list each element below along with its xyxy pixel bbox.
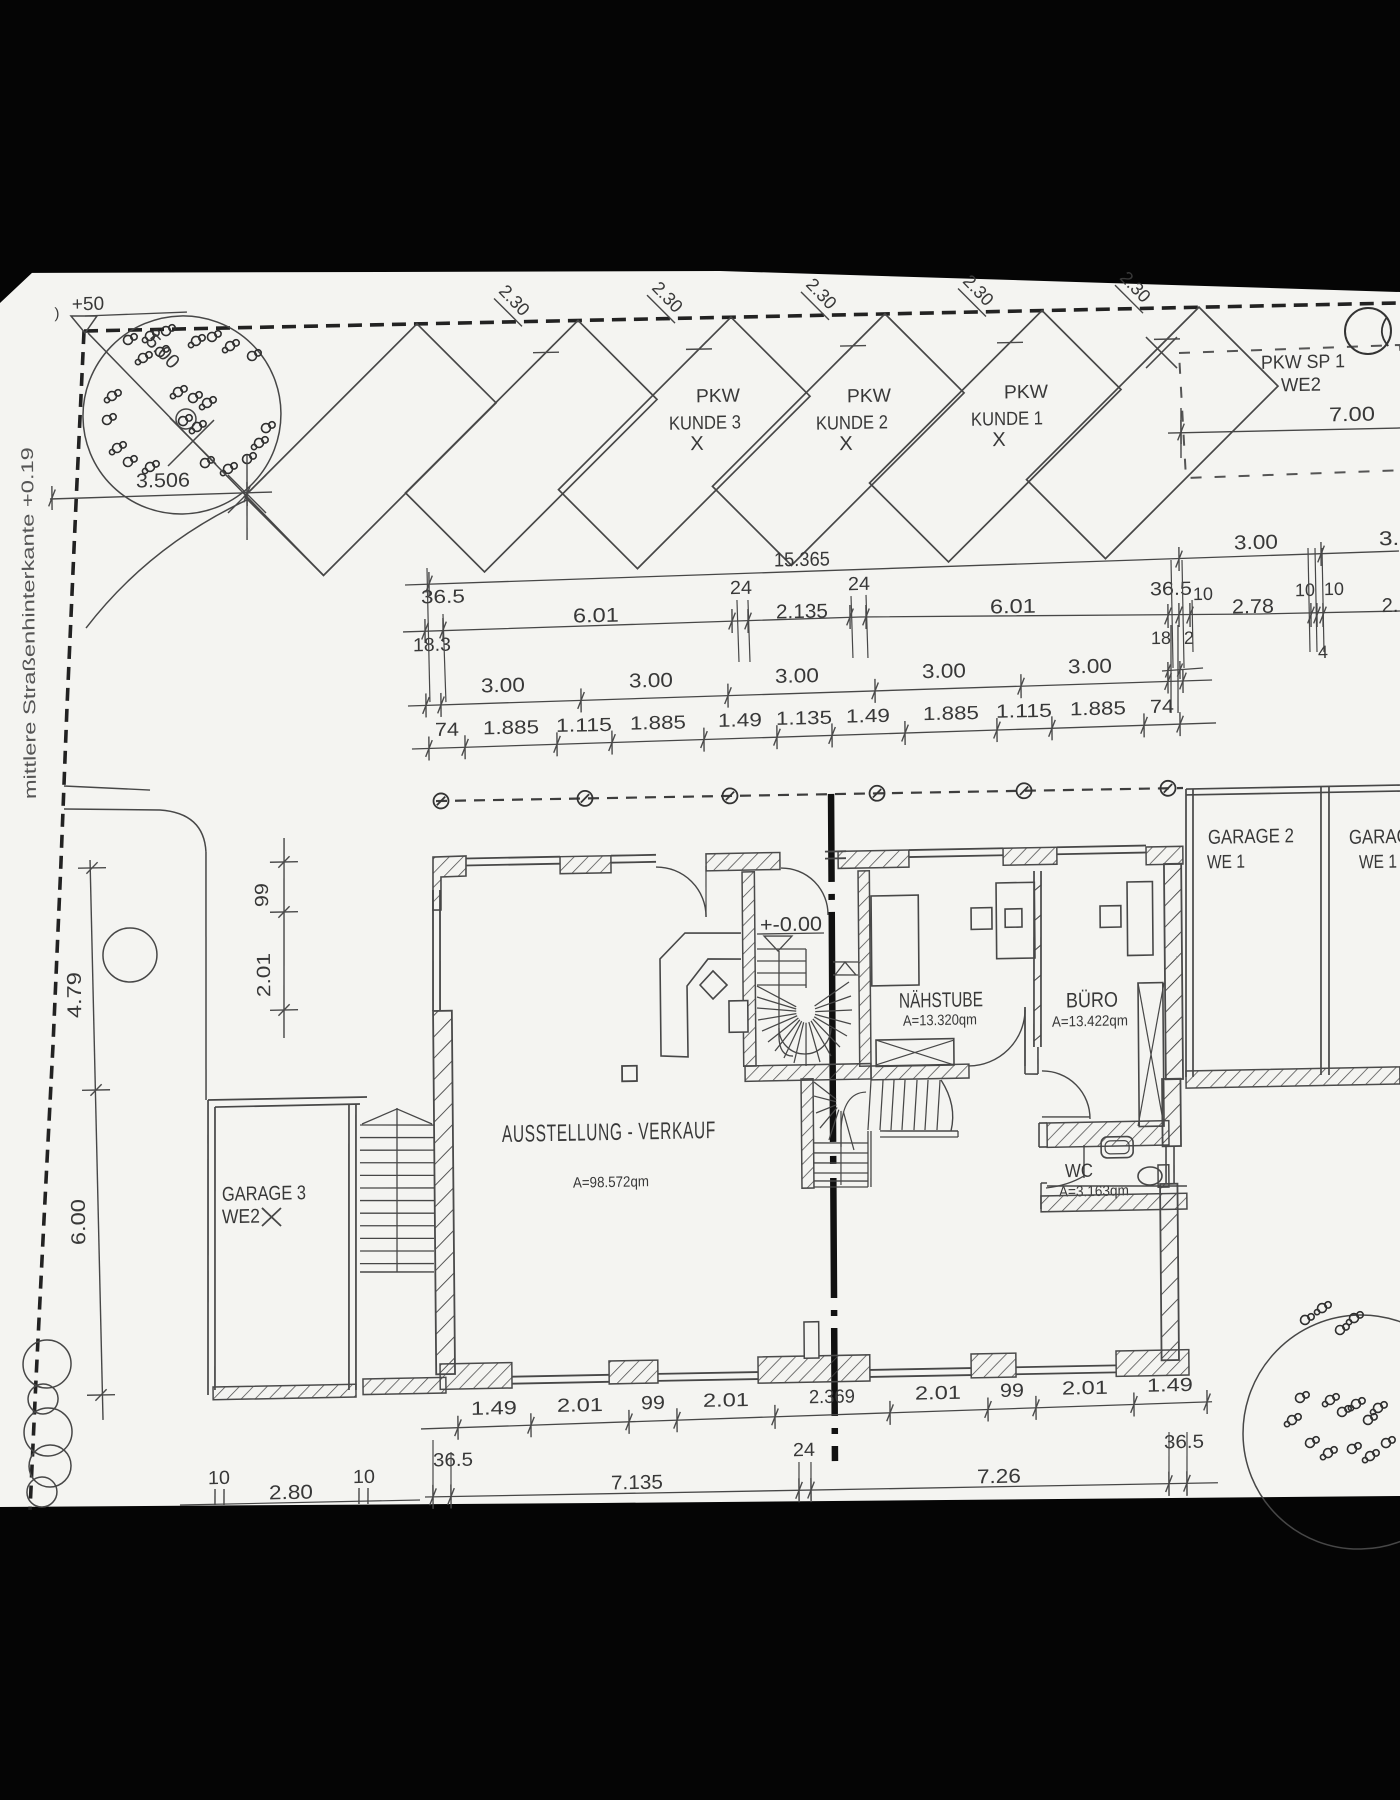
svg-text:PKW: PKW	[1004, 382, 1048, 404]
svg-text:A=13.320qm: A=13.320qm	[903, 1011, 977, 1029]
svg-text:15.365: 15.365	[774, 548, 830, 571]
svg-text:WE2: WE2	[1281, 375, 1321, 397]
svg-text:2.01: 2.01	[254, 953, 275, 997]
svg-text:24: 24	[793, 1440, 816, 1461]
svg-text:KUNDE 3: KUNDE 3	[669, 412, 741, 434]
svg-text:18.3: 18.3	[413, 635, 451, 657]
svg-text:WC: WC	[1065, 1161, 1093, 1183]
svg-text:X: X	[690, 433, 704, 455]
svg-text:36.5: 36.5	[1164, 1432, 1204, 1454]
svg-text:2.01: 2.01	[915, 1383, 961, 1405]
svg-text:GARAGE 3: GARAGE 3	[222, 1182, 306, 1206]
svg-text:BÜRO: BÜRO	[1066, 988, 1118, 1012]
svg-text:7.135: 7.135	[611, 1472, 663, 1495]
svg-text:3.00: 3.00	[481, 675, 525, 698]
svg-text:mittlere Straßenhinterkante +0: mittlere Straßenhinterkante +0.19	[18, 447, 40, 799]
svg-text:A=98.572qm: A=98.572qm	[573, 1173, 649, 1191]
svg-text:1.115: 1.115	[556, 715, 612, 737]
svg-text:3.00: 3.00	[1234, 532, 1278, 555]
svg-text:6.01: 6.01	[990, 596, 1036, 619]
svg-text:3.00: 3.00	[775, 665, 819, 688]
svg-text:NÄHSTUBE: NÄHSTUBE	[899, 988, 983, 1013]
svg-text:2.: 2.	[1382, 595, 1399, 617]
svg-text:10: 10	[1193, 584, 1213, 604]
svg-text:10: 10	[1324, 579, 1344, 599]
svg-text:24: 24	[730, 578, 753, 599]
svg-text:X: X	[839, 433, 853, 455]
svg-text:2.80: 2.80	[269, 1482, 313, 1505]
svg-text:X: X	[992, 429, 1006, 451]
svg-text:99: 99	[641, 1393, 665, 1414]
svg-text:PKW: PKW	[847, 386, 891, 408]
svg-text:2.369: 2.369	[809, 1386, 855, 1408]
svg-text:2.78: 2.78	[1232, 596, 1274, 619]
svg-text:6.00: 6.00	[68, 1199, 90, 1245]
svg-text:7.00: 7.00	[1329, 404, 1375, 427]
svg-text:AUSSTELLUNG - VERKAUF: AUSSTELLUNG - VERKAUF	[502, 1117, 716, 1148]
svg-text:1.135: 1.135	[776, 708, 832, 730]
svg-text:3.0: 3.0	[1379, 528, 1400, 551]
svg-text:2.01: 2.01	[557, 1395, 603, 1417]
svg-text:1.49: 1.49	[718, 710, 762, 732]
svg-text:PKW: PKW	[696, 386, 740, 408]
svg-text:3.00: 3.00	[922, 660, 966, 683]
svg-text:GARAGE 1: GARAGE 1	[1349, 825, 1400, 849]
svg-text:A=13.422qm: A=13.422qm	[1052, 1012, 1128, 1030]
svg-text:1.49: 1.49	[1147, 1375, 1193, 1397]
svg-text:2.01: 2.01	[1062, 1378, 1108, 1400]
svg-text:36.5: 36.5	[433, 1450, 473, 1472]
svg-text:+50: +50	[72, 294, 104, 316]
svg-text:WE2: WE2	[222, 1206, 260, 1229]
svg-text:10: 10	[1295, 580, 1315, 600]
svg-text:1.885: 1.885	[483, 717, 539, 739]
svg-text:1.885: 1.885	[1070, 698, 1126, 720]
svg-text:3.00: 3.00	[629, 670, 673, 693]
svg-text:4.79: 4.79	[64, 972, 86, 1018]
svg-text:1.885: 1.885	[630, 713, 686, 735]
svg-text:24: 24	[848, 574, 871, 595]
svg-text:99: 99	[1000, 1380, 1024, 1401]
svg-text:10: 10	[353, 1467, 375, 1488]
svg-text:1.115: 1.115	[996, 701, 1052, 723]
svg-text:KUNDE 2: KUNDE 2	[816, 412, 888, 434]
svg-text:99: 99	[252, 883, 273, 907]
svg-text:6.01: 6.01	[573, 605, 619, 628]
svg-text:WE 1: WE 1	[1207, 852, 1245, 874]
svg-text:): )	[54, 305, 59, 322]
svg-text:KUNDE 1: KUNDE 1	[971, 408, 1043, 430]
svg-text:3.506: 3.506	[136, 470, 190, 493]
svg-text:4: 4	[1318, 642, 1328, 662]
svg-text:1.49: 1.49	[846, 706, 890, 728]
svg-text:7.26: 7.26	[977, 1466, 1021, 1489]
svg-text:WE 1: WE 1	[1359, 852, 1397, 874]
svg-text:2.135: 2.135	[776, 600, 828, 623]
svg-text:3.00: 3.00	[1068, 656, 1112, 679]
svg-text:1.885: 1.885	[923, 703, 979, 725]
svg-text:74: 74	[1150, 697, 1175, 718]
svg-text:18: 18	[1151, 628, 1171, 648]
svg-text:GARAGE 2: GARAGE 2	[1208, 825, 1294, 849]
svg-text:1.49: 1.49	[471, 1398, 517, 1420]
svg-text:74: 74	[435, 720, 460, 741]
svg-text:PKW SP 1: PKW SP 1	[1261, 351, 1345, 374]
svg-text:2.01: 2.01	[703, 1390, 749, 1412]
svg-text:10: 10	[208, 1468, 230, 1489]
